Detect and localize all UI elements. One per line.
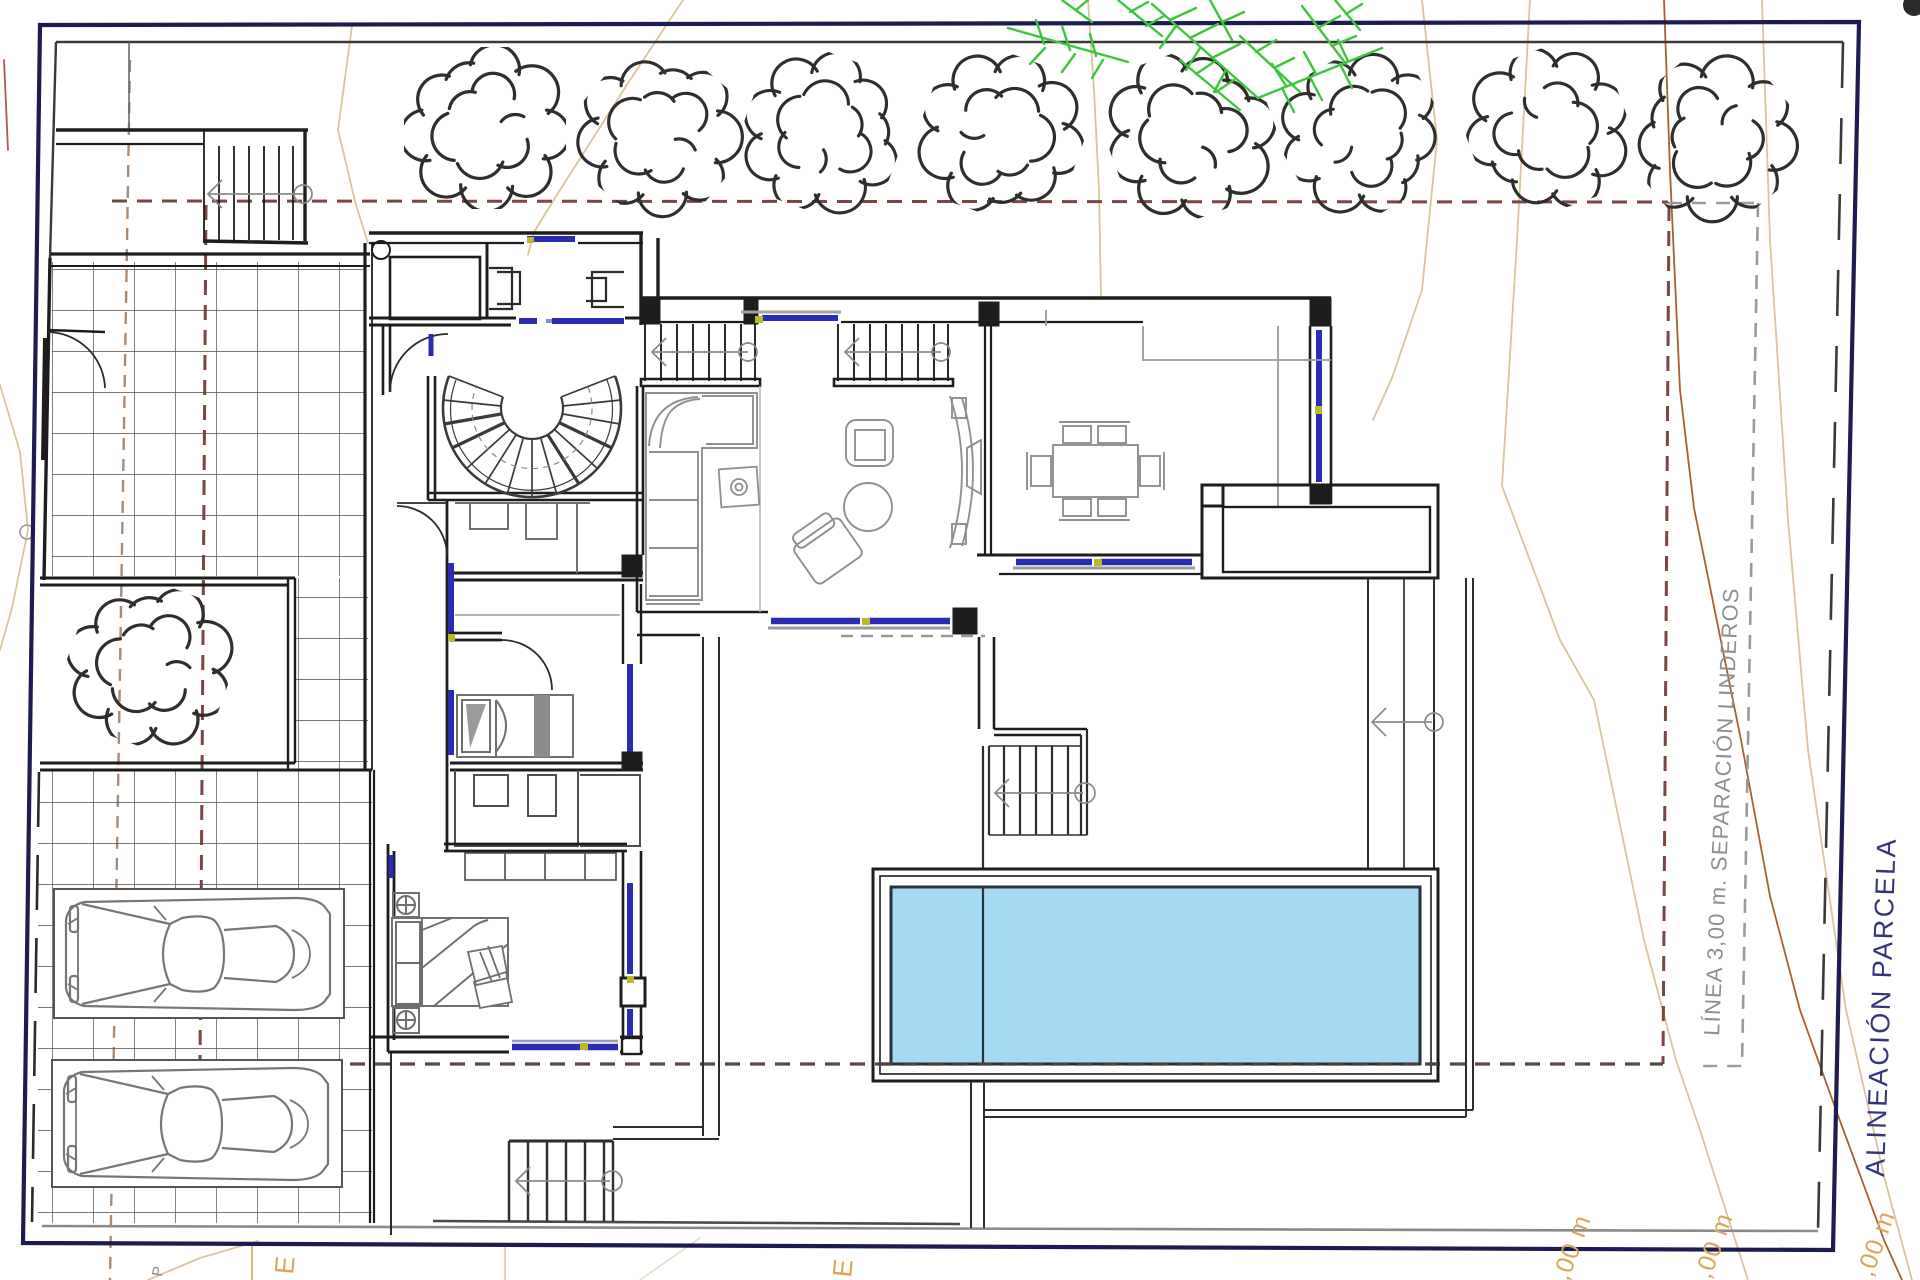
svg-text:E: E bbox=[269, 1255, 300, 1276]
svg-text:E: E bbox=[827, 1258, 858, 1279]
